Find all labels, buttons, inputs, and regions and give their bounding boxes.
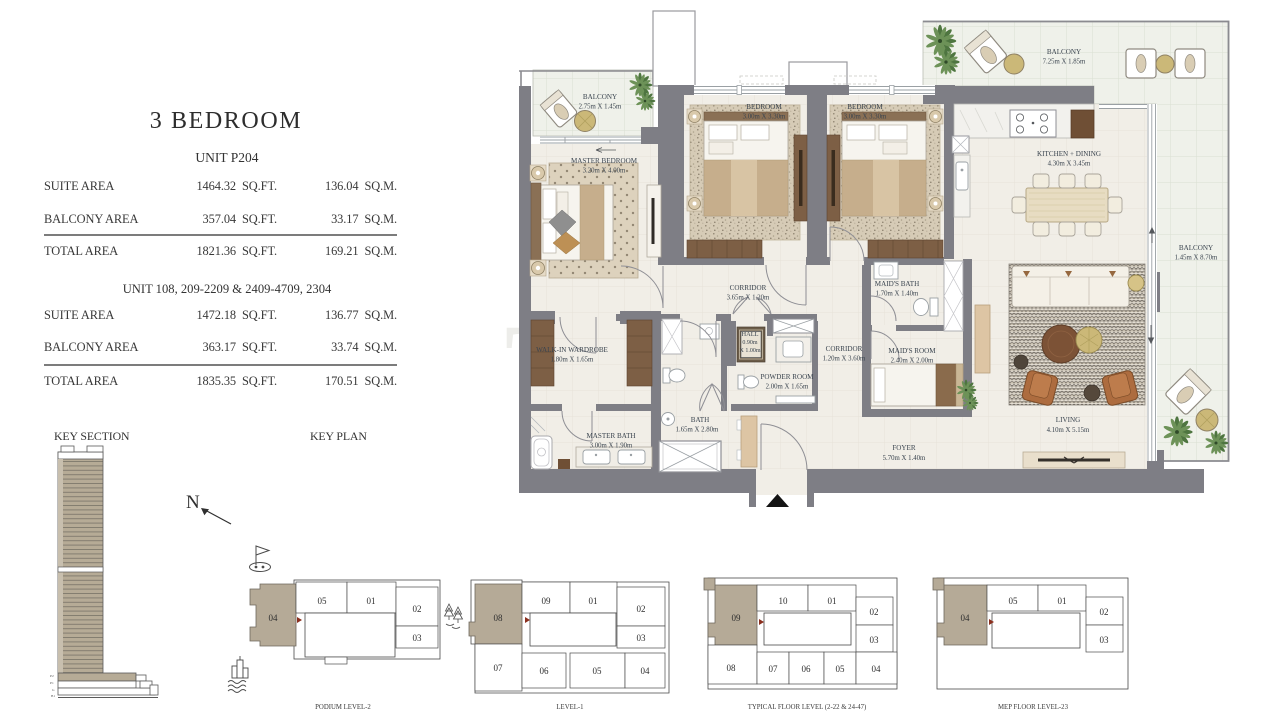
svg-text:HALL: HALL (741, 331, 758, 338)
svg-text:08: 08 (727, 663, 737, 673)
svg-text:363.17 SQ.FT.: 363.17 SQ.FT. (203, 340, 277, 354)
svg-text:06: 06 (540, 666, 550, 676)
svg-text:1472.18 SQ.FT.: 1472.18 SQ.FT. (196, 308, 277, 322)
svg-text:X 1.00m: X 1.00m (740, 348, 761, 354)
svg-text:1.45m X 8.70m: 1.45m X 8.70m (1175, 255, 1218, 262)
svg-text:LIVING: LIVING (1056, 416, 1080, 424)
svg-text:CORRIDOR: CORRIDOR (826, 345, 863, 353)
svg-text:1.20m X 3.60m: 1.20m X 3.60m (823, 356, 866, 363)
svg-text:2.00m X 1.65m: 2.00m X 1.65m (766, 384, 809, 391)
svg-text:03: 03 (637, 633, 647, 643)
svg-text:BALCONY: BALCONY (1179, 244, 1213, 252)
svg-text:KEY SECTION: KEY SECTION (54, 429, 130, 443)
svg-text:33.74 SQ.M.: 33.74 SQ.M. (331, 340, 397, 354)
svg-text:03: 03 (870, 635, 880, 645)
svg-text:136.04 SQ.M.: 136.04 SQ.M. (325, 179, 397, 193)
svg-text:2.75m X 1.45m: 2.75m X 1.45m (579, 104, 622, 111)
svg-text:B1: B1 (51, 694, 55, 698)
svg-text:3 BEDROOM: 3 BEDROOM (150, 108, 302, 134)
svg-text:33.17 SQ.M.: 33.17 SQ.M. (331, 212, 397, 226)
svg-text:02: 02 (1100, 607, 1109, 617)
svg-text:P1: P1 (50, 681, 54, 685)
svg-text:01: 01 (367, 596, 376, 606)
svg-text:08: 08 (494, 613, 504, 623)
svg-text:UNIT 108, 209-2209 & 2409-4709: UNIT 108, 209-2209 & 2409-4709, 2304 (123, 282, 332, 296)
svg-text:04: 04 (269, 613, 279, 623)
svg-text:BEDROOM: BEDROOM (746, 103, 782, 111)
svg-text:TOTAL AREA: TOTAL AREA (44, 244, 118, 258)
svg-text:136.77 SQ.M.: 136.77 SQ.M. (325, 308, 397, 322)
svg-text:1835.35 SQ.FT.: 1835.35 SQ.FT. (196, 374, 277, 388)
svg-text:MAID'S ROOM: MAID'S ROOM (888, 347, 936, 355)
svg-text:0.90m: 0.90m (742, 340, 758, 346)
svg-text:BATH: BATH (691, 416, 710, 424)
svg-text:04: 04 (961, 613, 971, 623)
svg-text:02: 02 (870, 607, 879, 617)
svg-text:07: 07 (769, 664, 779, 674)
svg-text:04: 04 (641, 666, 651, 676)
svg-text:KITCHEN + DINING: KITCHEN + DINING (1037, 150, 1101, 158)
svg-text:4.10m X 5.15m: 4.10m X 5.15m (1047, 427, 1090, 434)
svg-text:BEDROOM: BEDROOM (847, 103, 883, 111)
svg-text:02: 02 (637, 604, 646, 614)
svg-text:01: 01 (1058, 596, 1067, 606)
svg-text:3.20m X 4.00m: 3.20m X 4.00m (583, 168, 626, 175)
svg-text:05: 05 (1009, 596, 1019, 606)
svg-text:3.65m X 1.20m: 3.65m X 1.20m (727, 295, 770, 302)
svg-text:LEVEL-1: LEVEL-1 (556, 704, 583, 711)
svg-text:07: 07 (494, 663, 504, 673)
svg-text:FOYER: FOYER (892, 444, 916, 452)
svg-text:MAID'S BATH: MAID'S BATH (875, 280, 919, 288)
svg-text:2.40m X 2.00m: 2.40m X 2.00m (891, 358, 934, 365)
svg-text:MEP FLOOR LEVEL-23: MEP FLOOR LEVEL-23 (998, 704, 1069, 711)
svg-text:SUITE AREA: SUITE AREA (44, 179, 114, 193)
svg-text:BALCONY AREA: BALCONY AREA (44, 212, 139, 226)
svg-text:N: N (186, 492, 200, 513)
svg-text:1.65m X 2.80m: 1.65m X 2.80m (676, 427, 719, 434)
svg-text:MASTER BEDROOM: MASTER BEDROOM (571, 157, 638, 165)
svg-text:06: 06 (802, 664, 812, 674)
svg-text:P2: P2 (50, 674, 54, 678)
svg-text:09: 09 (732, 613, 742, 623)
svg-text:03: 03 (413, 633, 423, 643)
svg-text:BALCONY: BALCONY (583, 93, 617, 101)
svg-text:MASTER BATH: MASTER BATH (586, 432, 635, 440)
svg-text:KEY PLAN: KEY PLAN (310, 429, 367, 443)
svg-text:1.80m X 1.65m: 1.80m X 1.65m (551, 357, 594, 364)
svg-text:1.70m X 1.40m: 1.70m X 1.40m (876, 291, 919, 298)
svg-text:3.00m X 3.30m: 3.00m X 3.30m (844, 114, 887, 121)
svg-text:4.30m X 3.45m: 4.30m X 3.45m (1048, 161, 1091, 168)
svg-text:357.04 SQ.FT.: 357.04 SQ.FT. (203, 212, 277, 226)
svg-text:10: 10 (779, 596, 789, 606)
svg-text:BALCONY AREA: BALCONY AREA (44, 340, 139, 354)
svg-text:TOTAL AREA: TOTAL AREA (44, 374, 118, 388)
svg-text:169.21 SQ.M.: 169.21 SQ.M. (325, 244, 397, 258)
svg-text:CORRIDOR: CORRIDOR (730, 284, 767, 292)
svg-text:05: 05 (318, 596, 328, 606)
svg-text:3.00m X 3.30m: 3.00m X 3.30m (743, 114, 786, 121)
svg-text:01: 01 (828, 596, 837, 606)
svg-text:02: 02 (413, 604, 422, 614)
svg-text:5.70m X 1.40m: 5.70m X 1.40m (883, 455, 926, 462)
svg-text:WALK-IN WARDROBE: WALK-IN WARDROBE (536, 346, 608, 354)
svg-text:04: 04 (872, 664, 882, 674)
svg-text:01: 01 (589, 596, 598, 606)
svg-text:05: 05 (836, 664, 846, 674)
svg-text:05: 05 (593, 666, 603, 676)
svg-text:7.25m X 1.85m: 7.25m X 1.85m (1043, 59, 1086, 66)
svg-text:1464.32 SQ.FT.: 1464.32 SQ.FT. (196, 179, 277, 193)
svg-text:SUITE AREA: SUITE AREA (44, 308, 114, 322)
svg-text:POWDER ROOM: POWDER ROOM (760, 373, 814, 381)
svg-text:09: 09 (542, 596, 552, 606)
svg-text:170.51 SQ.M.: 170.51 SQ.M. (325, 374, 397, 388)
svg-text:1821.36 SQ.FT.: 1821.36 SQ.FT. (196, 244, 277, 258)
svg-text:TYPICAL FLOOR LEVEL (2-22 & 24: TYPICAL FLOOR LEVEL (2-22 & 24-47) (748, 704, 867, 711)
svg-text:UNIT P204: UNIT P204 (195, 150, 258, 165)
svg-text:3.00m X 1.90m: 3.00m X 1.90m (590, 443, 633, 450)
svg-text:PODIUM LEVEL-2: PODIUM LEVEL-2 (315, 704, 371, 711)
svg-text:03: 03 (1100, 635, 1110, 645)
svg-text:BALCONY: BALCONY (1047, 48, 1081, 56)
